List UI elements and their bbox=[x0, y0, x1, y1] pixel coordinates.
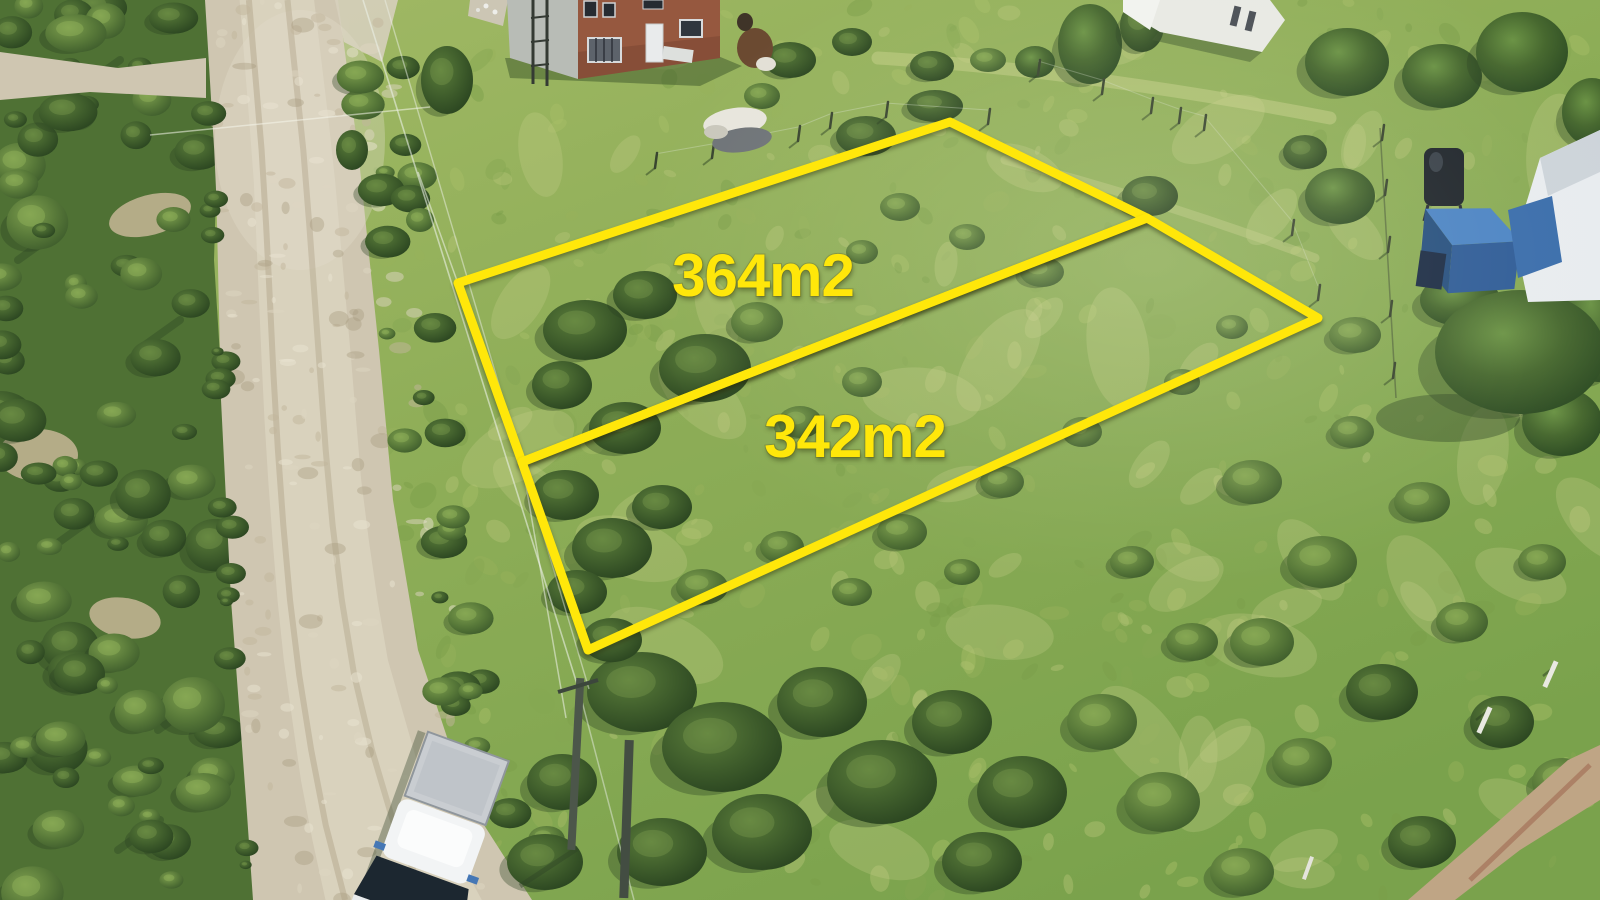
road-dark-spot bbox=[251, 719, 260, 734]
bush-highlight bbox=[49, 99, 75, 114]
gravel bbox=[267, 310, 285, 314]
road-dark-spot bbox=[282, 202, 290, 215]
house-window bbox=[680, 20, 702, 37]
bush-highlight bbox=[366, 179, 387, 192]
gravel bbox=[319, 735, 323, 740]
bush-highlight bbox=[242, 862, 247, 865]
road-dark-spot bbox=[299, 614, 323, 628]
bush-highlight bbox=[730, 807, 775, 837]
gravel bbox=[393, 484, 402, 491]
house-window bbox=[603, 3, 615, 17]
bush-highlight bbox=[124, 697, 147, 714]
bush-highlight bbox=[26, 588, 51, 604]
gravel bbox=[268, 177, 279, 184]
bush-highlight bbox=[98, 640, 121, 655]
bush-highlight bbox=[411, 212, 424, 222]
road-dark-spot bbox=[353, 309, 365, 322]
bush-highlight bbox=[398, 190, 416, 201]
bush-highlight bbox=[543, 479, 574, 499]
house-door bbox=[646, 24, 663, 62]
bush-highlight bbox=[169, 581, 186, 594]
bush-highlight bbox=[1445, 609, 1468, 625]
gravel bbox=[324, 792, 337, 795]
bush-highlight bbox=[63, 660, 86, 676]
bush-highlight bbox=[456, 608, 477, 621]
gravel bbox=[245, 465, 253, 470]
gravel bbox=[227, 314, 237, 318]
gravel bbox=[321, 800, 327, 805]
gravel bbox=[237, 95, 250, 104]
bush-highlight bbox=[1137, 783, 1171, 807]
gravel bbox=[268, 414, 279, 421]
bush-highlight bbox=[176, 471, 197, 485]
bush-highlight bbox=[586, 529, 622, 553]
bush-highlight bbox=[128, 263, 147, 276]
gravel bbox=[415, 592, 424, 597]
gravel bbox=[265, 609, 271, 619]
gravel bbox=[294, 455, 310, 460]
bush-highlight bbox=[463, 685, 474, 692]
bush-highlight bbox=[633, 830, 674, 857]
plot-label-364: 364m2 bbox=[672, 242, 854, 309]
road-dark-spot bbox=[258, 260, 273, 267]
bush-highlight bbox=[373, 231, 393, 244]
gravel bbox=[318, 110, 335, 117]
gravel bbox=[274, 2, 282, 9]
road-dark-spot bbox=[291, 18, 314, 33]
road-dark-spot bbox=[284, 816, 307, 827]
bush-highlight bbox=[61, 504, 79, 517]
bush-highlight bbox=[125, 478, 150, 498]
bush-highlight bbox=[993, 769, 1034, 798]
bush-highlight bbox=[158, 8, 180, 20]
gravel bbox=[345, 291, 349, 299]
road-dark-spot bbox=[310, 217, 324, 232]
gravel bbox=[309, 522, 320, 529]
bush-highlight bbox=[421, 318, 440, 330]
bush-highlight bbox=[25, 128, 43, 142]
bush-highlight bbox=[379, 168, 388, 173]
bush-highlight bbox=[197, 105, 213, 115]
gravel bbox=[311, 461, 328, 467]
bush-highlight bbox=[214, 349, 219, 352]
bush-highlight bbox=[121, 771, 143, 783]
gravel bbox=[390, 580, 395, 587]
bush-highlight bbox=[205, 230, 216, 237]
gravel bbox=[257, 652, 272, 656]
bush-highlight bbox=[1079, 704, 1111, 726]
bush-highlight bbox=[164, 874, 175, 881]
gravel bbox=[386, 272, 404, 282]
bush-highlight bbox=[111, 539, 121, 545]
road-dark-spot bbox=[232, 63, 256, 70]
gravel bbox=[260, 275, 274, 278]
gravel bbox=[364, 129, 374, 140]
house-window bbox=[643, 0, 663, 9]
road-dark-spot bbox=[231, 343, 241, 349]
bush-highlight bbox=[221, 590, 231, 596]
gravel bbox=[321, 185, 332, 189]
bush-highlight bbox=[57, 771, 69, 779]
road-dark-spot bbox=[295, 851, 314, 865]
bush-highlight bbox=[417, 393, 427, 399]
bush-highlight bbox=[45, 727, 67, 741]
bush-highlight bbox=[221, 567, 234, 575]
gravel bbox=[280, 703, 294, 712]
gravel bbox=[343, 466, 352, 469]
bush-highlight bbox=[1400, 825, 1431, 846]
gravel bbox=[389, 342, 411, 353]
gravel bbox=[327, 39, 341, 45]
bush-highlight bbox=[1241, 626, 1270, 645]
gravel bbox=[269, 427, 277, 434]
bush-highlight bbox=[64, 476, 74, 483]
gravel bbox=[356, 367, 371, 371]
gravel bbox=[342, 868, 353, 879]
gravel bbox=[222, 103, 234, 107]
patio-object bbox=[484, 4, 489, 9]
plot-label-342: 342m2 bbox=[764, 403, 946, 470]
gravel bbox=[236, 5, 251, 16]
gravel bbox=[263, 102, 279, 109]
bush-highlight bbox=[430, 58, 453, 85]
gravel bbox=[248, 693, 262, 699]
gravel bbox=[244, 667, 250, 676]
gravel bbox=[382, 89, 398, 98]
gravel bbox=[281, 405, 287, 411]
gravel bbox=[301, 408, 307, 419]
bush-highlight bbox=[185, 780, 210, 795]
bush-highlight bbox=[89, 751, 101, 758]
gravel bbox=[362, 618, 379, 626]
bush-highlight bbox=[211, 372, 225, 380]
bush-highlight bbox=[2, 151, 26, 169]
gravel bbox=[346, 203, 359, 213]
bush-highlight bbox=[216, 355, 229, 363]
gravel bbox=[347, 47, 359, 57]
bush-highlight bbox=[176, 427, 187, 433]
bush-highlight bbox=[793, 679, 834, 707]
gravel bbox=[387, 768, 397, 772]
gravel bbox=[329, 658, 339, 669]
road-dark-spot bbox=[352, 458, 364, 471]
bush-highlight bbox=[1283, 746, 1310, 765]
bush-highlight bbox=[126, 126, 140, 137]
aerial-photo-stage: 364m2 342m2 bbox=[0, 0, 1600, 900]
gravel bbox=[351, 672, 363, 683]
bush-highlight bbox=[539, 764, 571, 786]
gravel bbox=[255, 627, 272, 636]
bush-highlight bbox=[1175, 630, 1198, 645]
gravel bbox=[297, 883, 302, 893]
road-dark-spot bbox=[365, 747, 374, 758]
bush-highlight bbox=[222, 520, 237, 529]
gravel bbox=[283, 243, 288, 250]
gravel bbox=[335, 227, 349, 236]
gravel bbox=[251, 202, 262, 212]
bush-highlight bbox=[558, 311, 596, 335]
gravel bbox=[217, 29, 228, 36]
bush-highlight bbox=[86, 465, 103, 475]
gravel bbox=[216, 37, 226, 48]
bush-highlight bbox=[1526, 550, 1548, 564]
bush-highlight bbox=[56, 21, 84, 36]
gravel bbox=[278, 459, 292, 465]
gravel bbox=[225, 290, 242, 296]
bush-highlight bbox=[342, 137, 356, 153]
gravel bbox=[328, 274, 332, 282]
road-dark-spot bbox=[282, 759, 296, 767]
road-dark-spot bbox=[298, 467, 319, 479]
bush-highlight bbox=[143, 811, 153, 817]
gravel bbox=[332, 555, 336, 565]
road-dark-spot bbox=[357, 486, 372, 494]
bush-highlight bbox=[1, 545, 11, 553]
gravel bbox=[308, 632, 318, 638]
gravel bbox=[247, 218, 256, 227]
bush-highlight bbox=[606, 666, 656, 698]
gravel bbox=[281, 263, 286, 270]
patio-object bbox=[493, 10, 498, 15]
gravel bbox=[414, 384, 421, 390]
gravel bbox=[239, 592, 244, 595]
bush-highlight bbox=[36, 225, 46, 231]
bush-highlight bbox=[27, 466, 43, 475]
house-window bbox=[584, 1, 597, 17]
bush-highlight bbox=[685, 575, 708, 589]
bush-highlight bbox=[137, 825, 157, 838]
gravel bbox=[292, 345, 308, 353]
gravel bbox=[294, 77, 303, 86]
bush-highlight bbox=[1221, 856, 1250, 875]
gravel bbox=[386, 84, 402, 89]
patio-object bbox=[476, 8, 480, 12]
gravel bbox=[318, 24, 331, 31]
bush-highlight bbox=[239, 843, 250, 850]
bush-highlight bbox=[926, 701, 962, 727]
bush-highlight bbox=[432, 424, 450, 435]
bush-highlight bbox=[213, 501, 226, 509]
bush-highlight bbox=[71, 288, 86, 298]
gravel bbox=[278, 178, 295, 189]
gravel bbox=[247, 685, 260, 693]
road-dark-spot bbox=[347, 351, 365, 358]
bush-highlight bbox=[496, 803, 515, 815]
bush-highlight bbox=[956, 843, 992, 867]
gravel bbox=[354, 732, 363, 743]
road-dark-spot bbox=[333, 250, 344, 258]
bush-highlight bbox=[222, 599, 228, 603]
aerial-drone-photo: 364m2 342m2 bbox=[0, 0, 1600, 900]
gravel bbox=[254, 536, 266, 544]
bush-highlight bbox=[16, 740, 30, 749]
road-dark-spot bbox=[325, 543, 346, 555]
bush-highlight bbox=[543, 369, 570, 388]
bush-highlight bbox=[42, 817, 65, 832]
gravel bbox=[367, 826, 381, 831]
gravel bbox=[279, 359, 295, 362]
bush-highlight bbox=[69, 278, 79, 286]
bush-highlight bbox=[846, 755, 896, 789]
gravel bbox=[328, 47, 338, 54]
gravel bbox=[264, 572, 274, 582]
gravel bbox=[242, 18, 246, 25]
gravel bbox=[309, 157, 324, 164]
gravel bbox=[266, 171, 276, 175]
gravel bbox=[279, 729, 289, 739]
gravel bbox=[318, 362, 326, 368]
bush-highlight bbox=[643, 493, 670, 511]
bush-highlight bbox=[178, 294, 195, 305]
gravel bbox=[309, 367, 314, 373]
bush-highlight bbox=[442, 509, 457, 518]
gravel bbox=[289, 482, 297, 486]
gravel bbox=[272, 297, 276, 304]
bush-highlight bbox=[101, 680, 110, 687]
bush-highlight bbox=[139, 346, 162, 361]
gravel bbox=[372, 18, 383, 28]
gravel bbox=[363, 268, 371, 274]
gravel bbox=[311, 13, 326, 22]
gravel bbox=[349, 397, 357, 403]
gravel bbox=[268, 782, 273, 790]
gravel bbox=[241, 710, 258, 717]
gravel bbox=[347, 719, 359, 726]
bush-highlight bbox=[162, 211, 177, 221]
bush-highlight bbox=[382, 330, 390, 335]
bush-highlight bbox=[57, 459, 68, 467]
bush-highlight bbox=[434, 593, 442, 598]
bush-highlight bbox=[183, 140, 205, 154]
bush-highlight bbox=[173, 687, 201, 709]
bush-highlight bbox=[1359, 674, 1391, 696]
gravel bbox=[319, 868, 331, 876]
gravel bbox=[245, 599, 253, 605]
bush-highlight bbox=[0, 406, 25, 423]
bush-highlight bbox=[768, 537, 788, 550]
gravel bbox=[242, 637, 257, 645]
gravel bbox=[406, 308, 422, 318]
gravel bbox=[283, 465, 298, 470]
gravel bbox=[269, 254, 285, 258]
bush-highlight bbox=[12, 876, 40, 897]
bush-highlight bbox=[683, 718, 737, 754]
gravel bbox=[476, 883, 485, 890]
bush-highlight bbox=[393, 433, 409, 443]
bush-highlight bbox=[142, 760, 154, 767]
bush-highlight bbox=[41, 541, 52, 548]
gravel bbox=[252, 378, 259, 382]
road-dark-spot bbox=[287, 98, 304, 107]
gravel bbox=[304, 823, 313, 833]
gravel bbox=[314, 94, 320, 97]
gravel bbox=[331, 685, 346, 691]
gravel bbox=[352, 621, 363, 626]
road-dark-spot bbox=[240, 193, 253, 206]
bush-highlight bbox=[207, 383, 220, 391]
bush-highlight bbox=[52, 631, 78, 651]
gravel bbox=[241, 300, 257, 305]
gravel bbox=[286, 70, 304, 76]
bush-highlight bbox=[219, 651, 233, 660]
bush-highlight bbox=[429, 682, 447, 693]
gravel bbox=[353, 520, 370, 529]
road-dark-spot bbox=[241, 381, 254, 391]
bush-highlight bbox=[839, 583, 857, 594]
bush-highlight bbox=[349, 95, 369, 107]
bush-highlight bbox=[149, 526, 169, 541]
gravel bbox=[315, 431, 321, 441]
bush-highlight bbox=[345, 66, 366, 79]
debris-pile bbox=[737, 13, 753, 31]
bush-highlight bbox=[21, 644, 34, 654]
gravel bbox=[376, 297, 392, 307]
bush-highlight bbox=[520, 844, 554, 866]
bush-highlight bbox=[5, 174, 23, 186]
gravel bbox=[292, 201, 304, 208]
bush-highlight bbox=[8, 114, 18, 121]
bush-highlight bbox=[113, 799, 125, 807]
gravel bbox=[232, 31, 238, 40]
bush-highlight bbox=[104, 406, 122, 416]
bush-highlight bbox=[208, 194, 219, 201]
